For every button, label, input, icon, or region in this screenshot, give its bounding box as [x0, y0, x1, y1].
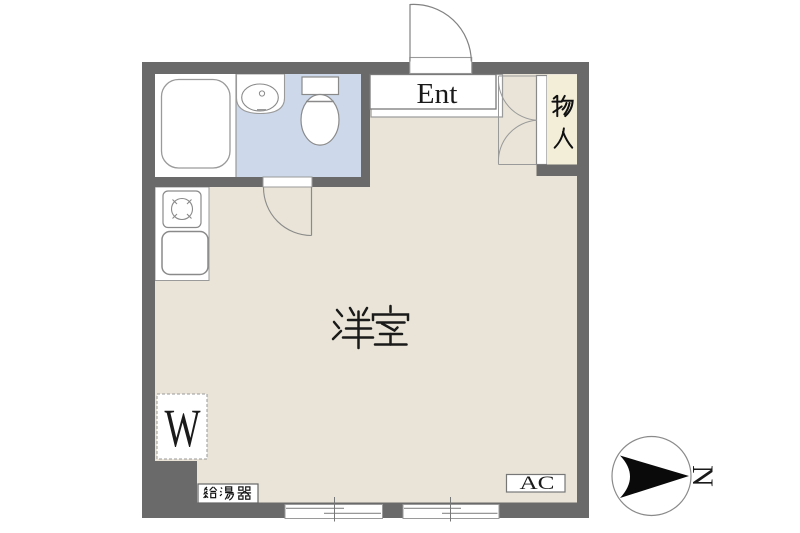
svg-text:N: N	[686, 465, 719, 487]
svg-text:AC: AC	[520, 473, 555, 494]
svg-text:Ent: Ent	[417, 79, 458, 110]
svg-text:W: W	[165, 398, 201, 458]
